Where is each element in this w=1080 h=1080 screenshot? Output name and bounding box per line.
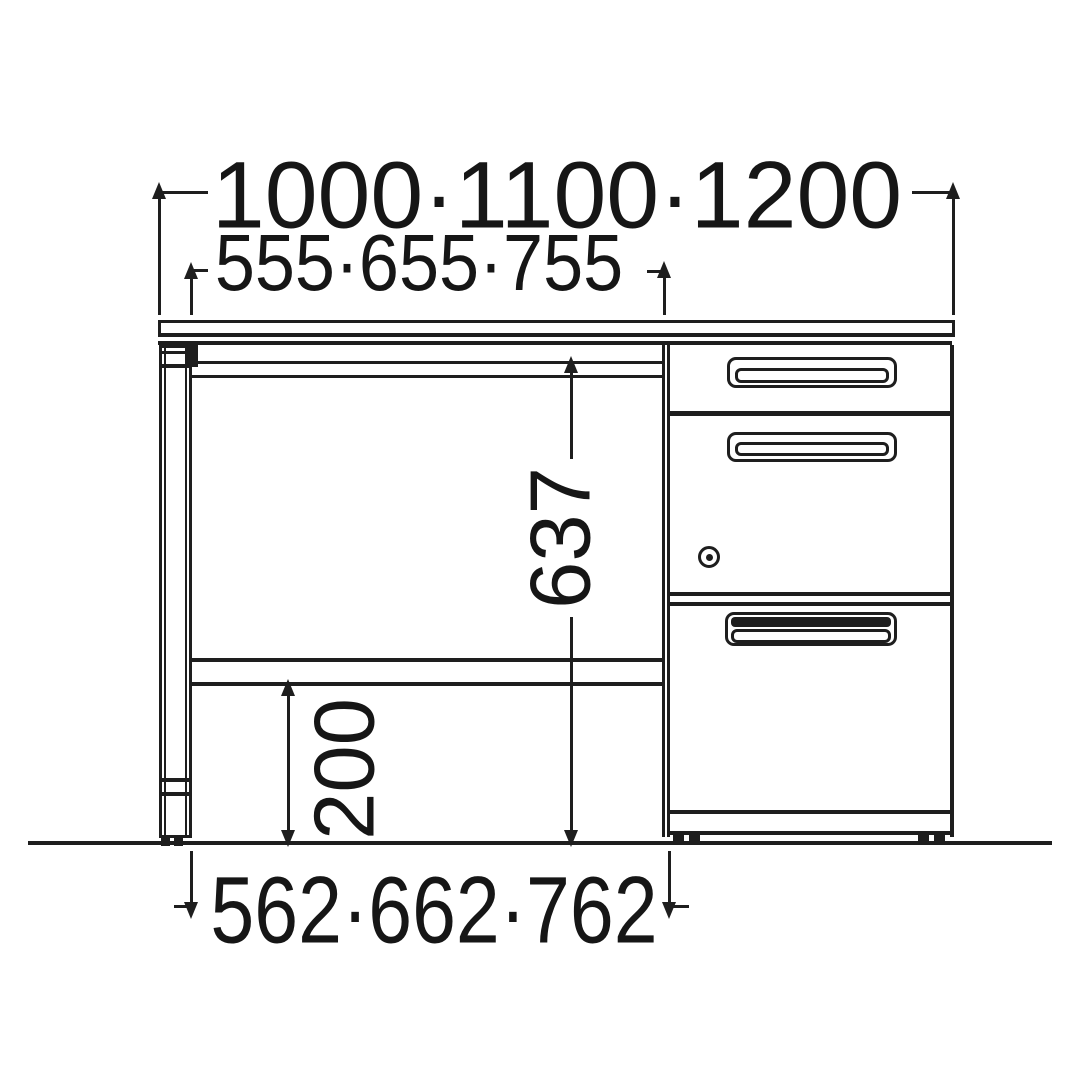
dim-knee-height-label: 637	[519, 467, 604, 609]
kneehole-rail-line-2	[190, 375, 664, 378]
left-leg-bottom-band-1	[162, 778, 189, 782]
pedestal-right-edge-line	[950, 345, 954, 837]
drawer-3-handle-bar	[731, 617, 891, 627]
desktop-surface	[158, 320, 955, 337]
pedestal-foot-glide-4	[934, 835, 945, 844]
dim-top-inner-stub-right	[647, 270, 664, 273]
drawer-3-handle-slot	[731, 629, 891, 643]
dim-top-inner-ext-left	[190, 277, 193, 315]
dim-bottom-inner-ext-left	[190, 851, 193, 905]
desktop-underside-line	[158, 341, 952, 345]
dim-overall-width-ext-left	[158, 189, 161, 315]
modesty-panel-bottom-line-1	[190, 658, 664, 662]
dim-overall-width-arrow-left	[152, 182, 166, 199]
pedestal-foot-glide-3	[918, 835, 929, 844]
pedestal-foot-glide-2	[689, 835, 700, 844]
dim-knee-height-line-lower	[570, 617, 573, 833]
modesty-panel-bottom-line-2	[190, 682, 664, 686]
left-leg-inner-line-right	[185, 345, 187, 838]
pedestal-foot-glide-1	[673, 835, 684, 844]
pedestal-left-edge-line-1	[662, 345, 665, 837]
drawer-divider-line-1	[668, 411, 950, 416]
drawer-1-handle-slot	[735, 368, 889, 383]
left-leg-top-band-1	[162, 351, 189, 354]
dim-clearance-line	[287, 694, 290, 832]
dim-floor-clearance-label: 200	[303, 698, 388, 840]
dim-bottom-inner-stub-left	[174, 905, 191, 908]
dim-top-inner-width-label: 555·655·755	[215, 223, 623, 303]
dim-bottom-inner-stub-right	[672, 905, 689, 908]
left-leg-foot-glide-2	[174, 838, 183, 846]
pedestal-left-edge-line-2	[667, 345, 670, 837]
left-leg-foot-glide-1	[161, 838, 170, 846]
dim-knee-height-arrow-bottom	[564, 830, 578, 847]
technical-drawing-canvas: 1000·1100·1200 555·655·755 637 200 562·6…	[0, 0, 1080, 1080]
dim-knee-height-line-upper	[570, 371, 573, 459]
pedestal-plinth-bottom-line	[668, 831, 954, 835]
left-leg-bottom-band-2	[162, 792, 189, 796]
left-leg-top-band-2	[162, 364, 189, 368]
drawer-divider-line-2a	[668, 592, 950, 596]
drawer-divider-line-2b	[668, 602, 950, 606]
drawer-2-handle-slot	[735, 442, 889, 456]
dim-top-inner-stub-left	[191, 269, 208, 272]
left-leg-inner-line-left	[164, 345, 166, 838]
kneehole-rail-line-1	[190, 361, 664, 364]
drawer-3-bottom-line	[668, 810, 950, 814]
lock-keyhole-dot	[706, 554, 713, 561]
dim-bottom-inner-width-label: 562·662·762	[210, 864, 657, 959]
dim-overall-width-arrow-right	[946, 182, 960, 199]
dim-clearance-arrow-bottom	[281, 830, 295, 847]
dim-bottom-inner-ext-right	[668, 851, 671, 905]
dim-overall-width-ext-right	[952, 189, 955, 315]
dim-top-inner-ext-right	[663, 276, 666, 315]
dim-overall-width-line-left	[160, 191, 208, 194]
